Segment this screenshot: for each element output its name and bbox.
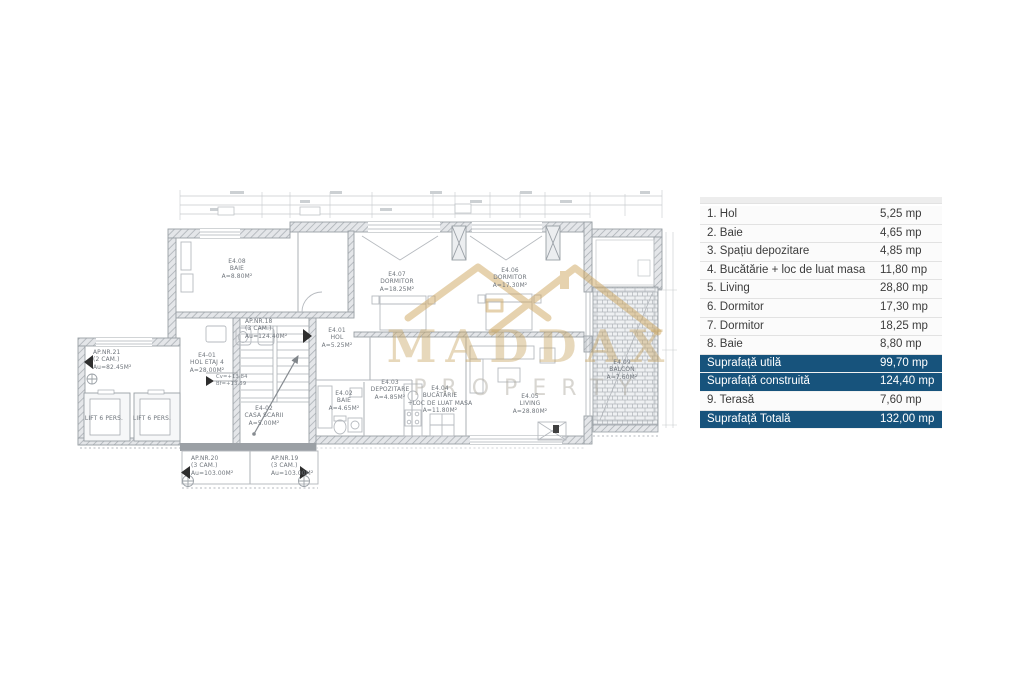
table-row: 7. Dormitor18,25 mp	[700, 318, 942, 337]
area-table: 1. Hol5,25 mp2. Baie4,65 mp3. Spațiu dep…	[700, 197, 942, 429]
row-value: 7,60 mp	[880, 392, 922, 410]
plan-label-line: Au=103.00M²	[191, 471, 261, 478]
table-header-strip	[700, 197, 942, 204]
plan-label-line: (3 CAM.)	[245, 326, 315, 333]
plan-label-casascarii: E4-02CASA SCARIIA=5.00M²	[222, 406, 306, 428]
plan-label-line: LIFT 6 PERS.	[110, 416, 194, 423]
row-value: 99,70 mp	[880, 355, 928, 373]
table-row: 5. Living28,80 mp	[700, 280, 942, 299]
dimension-numbers	[210, 191, 650, 211]
plan-label-holetaj: E4-01HOL ETAJ 4A=28.00M²	[165, 353, 249, 375]
table-row: Suprafață utilă99,70 mp	[700, 355, 942, 374]
row-value: 8,80 mp	[880, 336, 922, 354]
plan-label-line: BAIE	[195, 266, 279, 273]
plan-label-line: BUCĂTĂRIE	[398, 393, 482, 400]
plan-label-line: E4-02	[222, 406, 306, 413]
row-value: 124,40 mp	[880, 373, 934, 391]
table-row: Suprafață Totală132,00 mp	[700, 411, 942, 430]
plan-label-line: DORMITOR	[355, 279, 439, 286]
plan-label-line: (2 CAM.)	[93, 357, 163, 364]
table-row: 3. Spațiu depozitare4,85 mp	[700, 243, 942, 262]
row-value: 17,30 mp	[880, 299, 928, 317]
table-row: 1. Hol5,25 mp	[700, 206, 942, 225]
row-label: 8. Baie	[707, 336, 743, 354]
row-value: 4,85 mp	[880, 243, 922, 261]
plan-label-e404: E4.04BUCĂTĂRIE+LOC DE LUAT MASAA=11.80M²	[398, 386, 482, 416]
row-value: 4,65 mp	[880, 225, 922, 243]
plan-label-line: A=5.00M²	[222, 421, 306, 428]
row-value: 11,80 mp	[880, 262, 927, 280]
plan-label-line: E4.06	[468, 268, 552, 275]
plan-label-line: BALCON	[580, 367, 664, 374]
plan-label-line: E4-01	[165, 353, 249, 360]
plan-label-line: AP.NR.21	[93, 350, 163, 357]
table-row: 6. Dormitor17,30 mp	[700, 299, 942, 318]
row-label: 6. Dormitor	[707, 299, 764, 317]
plan-label-ap18: AP.NR.18(3 CAM.)Au=124.40M²	[245, 319, 315, 341]
plan-label-line: Au=124.40M²	[245, 334, 315, 341]
plan-label-line: E4.07	[355, 272, 439, 279]
row-label: 1. Hol	[707, 206, 737, 224]
plan-label-line: Au=82.45M²	[93, 365, 163, 372]
row-label: 3. Spațiu depozitare	[707, 243, 809, 261]
plan-label-line: AP.NR.20	[191, 456, 261, 463]
plan-label-line: HOL ETAJ 4	[165, 360, 249, 367]
plan-label-line: E4.09	[580, 360, 664, 367]
plan-label-cota: Cv=+13.84Bf=+13.59	[216, 374, 286, 387]
row-label: 4. Bucătărie + loc de luat masa	[707, 262, 865, 280]
row-label: Suprafață Totală	[707, 411, 791, 429]
plan-label-line: A=4.65M²	[302, 406, 386, 413]
row-label: 2. Baie	[707, 225, 743, 243]
plan-label-ap20: AP.NR.20(3 CAM.)Au=103.00M²	[191, 456, 261, 478]
plan-label-line: AP.NR.18	[245, 319, 315, 326]
row-label: Suprafață utilă	[707, 355, 781, 373]
area-table-rows: 1. Hol5,25 mp2. Baie4,65 mp3. Spațiu dep…	[700, 206, 942, 429]
table-row: 4. Bucătărie + loc de luat masa11,80 mp	[700, 262, 942, 281]
plan-label-line: A=28.80M²	[488, 409, 572, 416]
row-value: 132,00 mp	[880, 411, 934, 429]
plan-label-line: CASA SCARII	[222, 413, 306, 420]
plan-label-line: LIVING	[488, 401, 572, 408]
table-row: Suprafață construită124,40 mp	[700, 373, 942, 392]
plan-label-line: (3 CAM.)	[191, 463, 261, 470]
row-label: 7. Dormitor	[707, 318, 764, 336]
plan-label-lift2: LIFT 6 PERS.	[110, 416, 194, 423]
plan-label-line: (3 CAM.)	[271, 463, 341, 470]
row-value: 18,25 mp	[880, 318, 928, 336]
plan-label-line: A=7.60M²	[580, 375, 664, 382]
plan-label-e407: E4.07DORMITORA=18.25M²	[355, 272, 439, 294]
plan-label-ap21: AP.NR.21(2 CAM.)Au=82.45M²	[93, 350, 163, 372]
plan-label-line: A=11.80M²	[398, 408, 482, 415]
row-value: 28,80 mp	[880, 280, 928, 298]
row-value: 5,25 mp	[880, 206, 922, 224]
plan-label-e406: E4.06DORMITORA=17.30M²	[468, 268, 552, 290]
lower-wall-band	[180, 443, 316, 451]
plan-label-line: DORMITOR	[468, 275, 552, 282]
plan-label-e409: E4.09BALCONA=7.60M²	[580, 360, 664, 382]
row-label: Suprafață construită	[707, 373, 810, 391]
plan-label-line: A=18.25M²	[355, 287, 439, 294]
plan-label-ap19: AP.NR.19(3 CAM.)Au=103.00M²	[271, 456, 341, 478]
plan-label-line: E4.05	[488, 394, 572, 401]
plan-label-line: Au=103.00M²	[271, 471, 341, 478]
table-row: 9. Terasă7,60 mp	[700, 392, 942, 411]
plan-label-line: A=17.30M²	[468, 283, 552, 290]
plan-label-e408: E4.08BAIEA=8.80M²	[195, 259, 279, 281]
plan-label-line: Bf=+13.59	[216, 381, 286, 388]
row-label: 9. Terasă	[707, 392, 754, 410]
plan-label-e405: E4.05LIVINGA=28.80M²	[488, 394, 572, 416]
floorplan-page: MADDAX PROPERTY E4.08BAIEA=8.80M²E4.07DO…	[0, 0, 1024, 675]
plan-label-line: A=5.25M²	[295, 343, 379, 350]
plan-label-line: AP.NR.19	[271, 456, 341, 463]
row-label: 5. Living	[707, 280, 750, 298]
table-row: 8. Baie8,80 mp	[700, 336, 942, 355]
plan-label-line: A=8.80M²	[195, 274, 279, 281]
table-row: 2. Baie4,65 mp	[700, 225, 942, 244]
plan-label-line: E4.08	[195, 259, 279, 266]
